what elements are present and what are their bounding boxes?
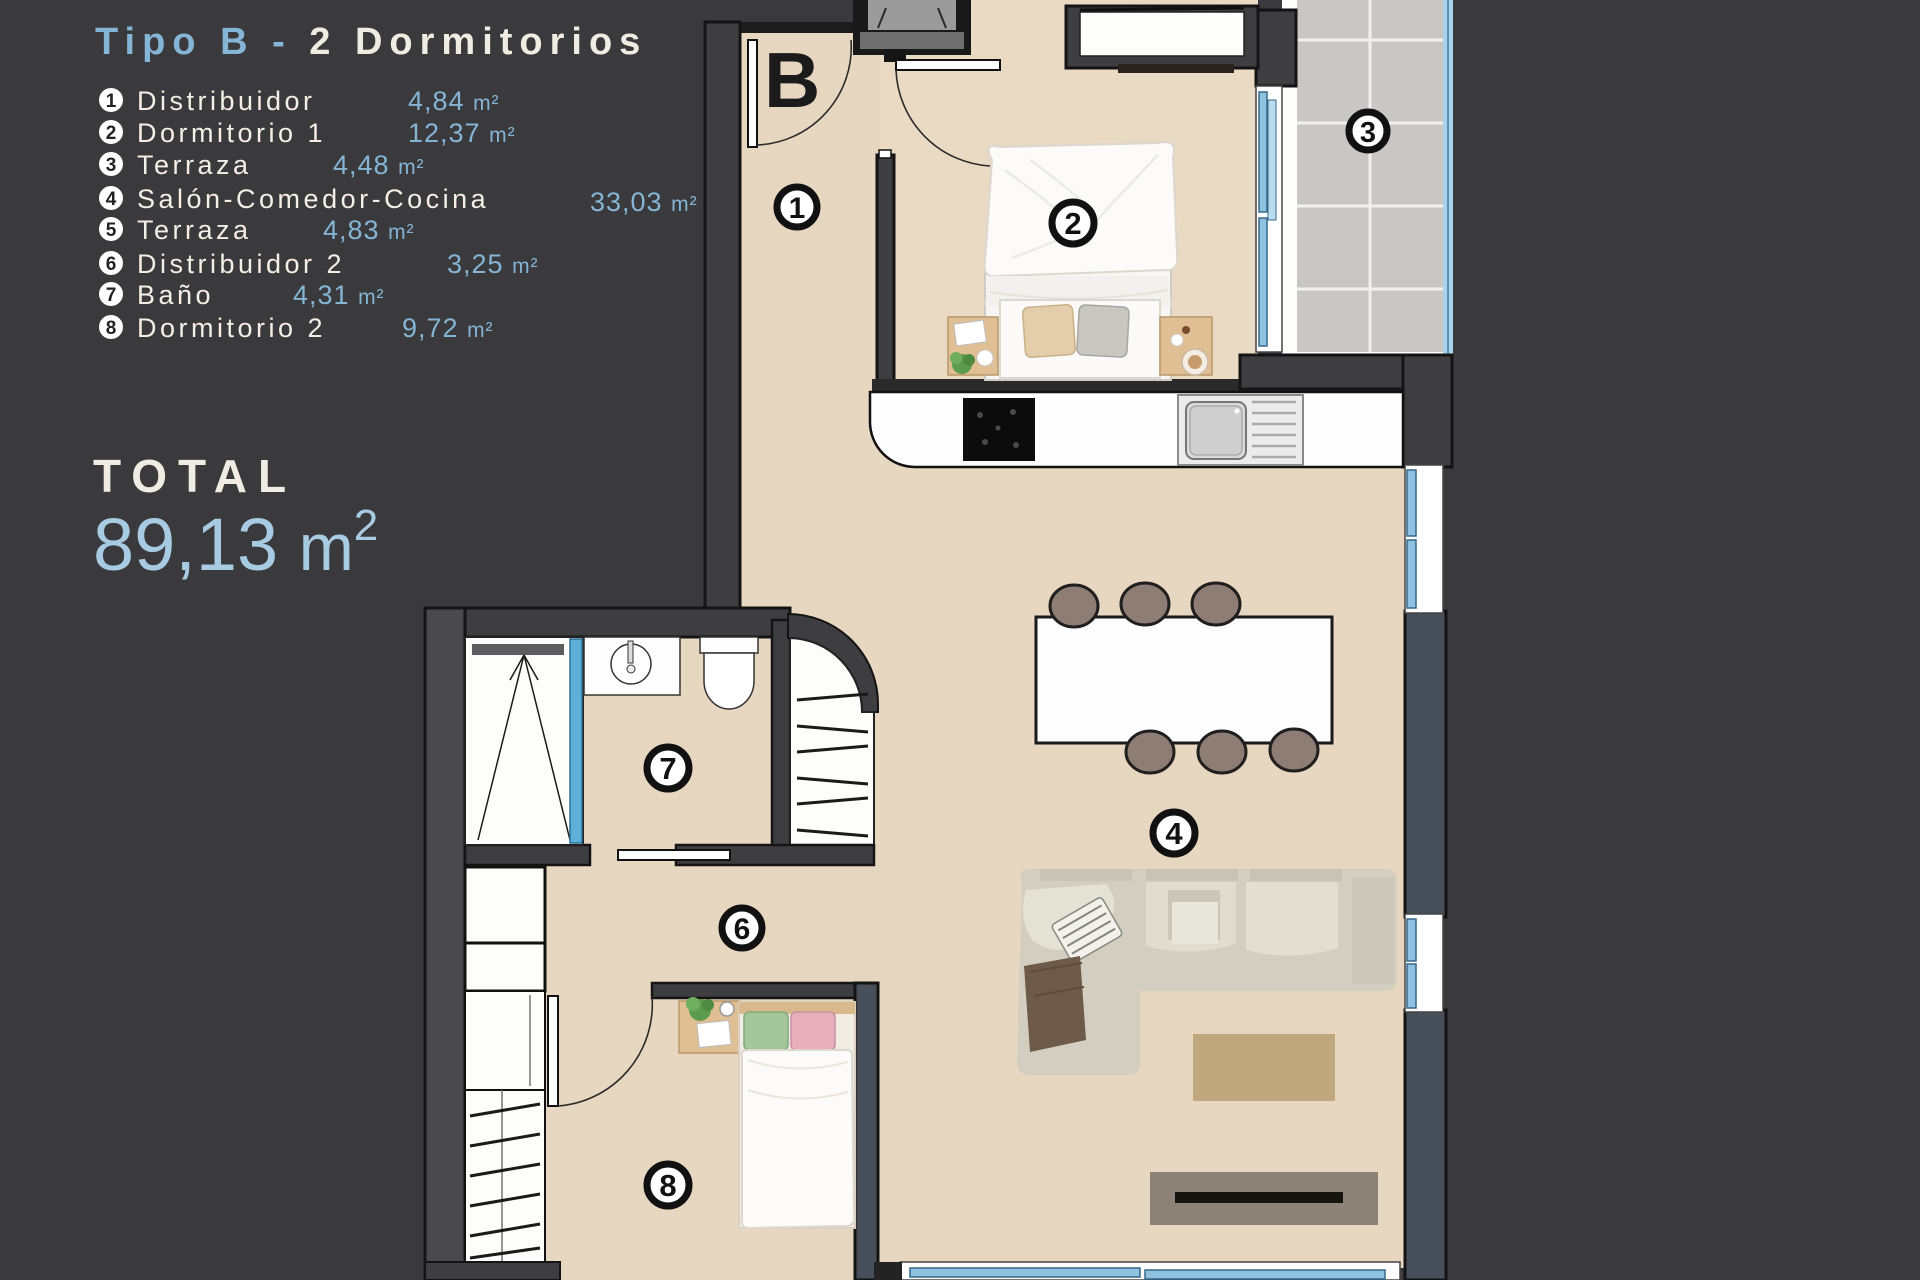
svg-text:B: B — [764, 36, 820, 124]
svg-text:1: 1 — [106, 91, 117, 112]
svg-text:2: 2 — [106, 123, 117, 144]
svg-text:Terraza: Terraza — [137, 150, 252, 180]
svg-text:Salón-Comedor-Cocina: Salón-Comedor-Cocina — [137, 184, 489, 214]
svg-text:TOTAL: TOTAL — [93, 450, 297, 502]
svg-text:3: 3 — [106, 155, 117, 176]
svg-text:Tipo B - 2 Dormitorios: Tipo B - 2 Dormitorios — [95, 21, 647, 63]
svg-text:5: 5 — [106, 220, 117, 241]
svg-text:Dormitorio 1: Dormitorio 1 — [137, 118, 326, 148]
svg-text:Distribuidor 2: Distribuidor 2 — [137, 249, 345, 279]
svg-text:8: 8 — [106, 318, 117, 339]
svg-text:7: 7 — [106, 285, 117, 306]
svg-text:Dormitorio 2: Dormitorio 2 — [137, 313, 326, 343]
svg-text:Distribuidor: Distribuidor — [137, 86, 316, 116]
svg-text:Baño: Baño — [137, 280, 214, 310]
svg-text:Terraza: Terraza — [137, 215, 252, 245]
svg-text:6: 6 — [106, 254, 117, 275]
svg-text:6: 6 — [734, 913, 751, 946]
svg-text:2: 2 — [1064, 206, 1081, 241]
svg-text:4: 4 — [106, 189, 117, 210]
svg-text:89,13 m2: 89,13 m2 — [93, 501, 378, 586]
svg-text:8: 8 — [659, 1168, 676, 1203]
svg-text:4: 4 — [1165, 816, 1183, 851]
svg-text:3: 3 — [1360, 117, 1376, 149]
svg-text:1: 1 — [789, 192, 806, 225]
svg-text:7: 7 — [659, 751, 676, 786]
